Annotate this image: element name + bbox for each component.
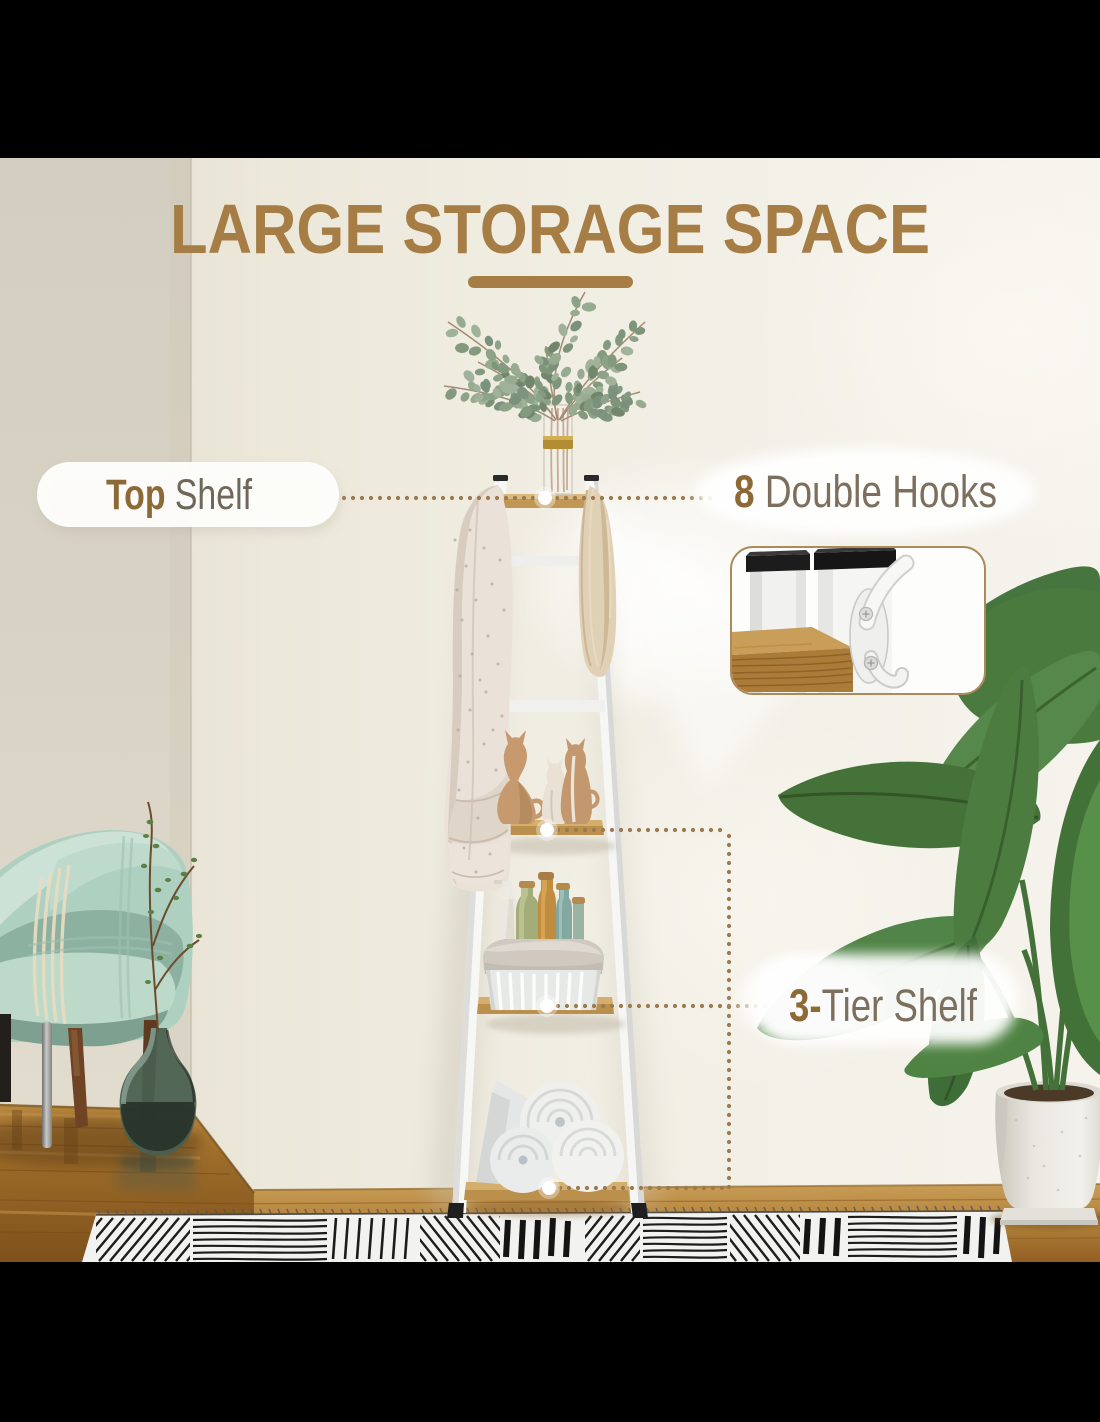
svg-text:Top Shelf: Top Shelf xyxy=(106,471,253,519)
svg-text:LARGE STORAGE SPACE: LARGE STORAGE SPACE xyxy=(170,190,930,268)
svg-text:3-Tier Shelf: 3-Tier Shelf xyxy=(789,980,977,1031)
svg-text:8 Double Hooks: 8 Double Hooks xyxy=(734,466,997,517)
